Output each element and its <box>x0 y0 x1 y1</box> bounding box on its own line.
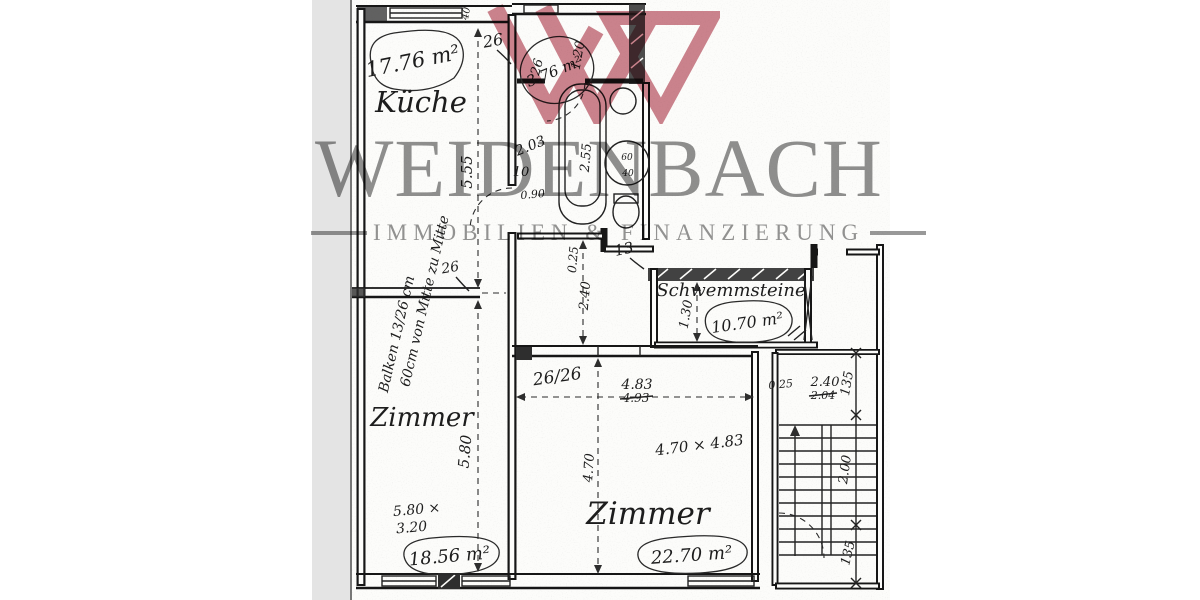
tagline-rule-right <box>870 231 926 235</box>
watermark-tagline: IMMOBILIEN & FINANZIERUNG <box>311 220 889 246</box>
watermark-brand-text: WEIDENBACH <box>315 127 891 210</box>
screenshot-floorplan: 17.76 m² Küche 40 26 5.55 3.76 m² 26 1.2… <box>0 0 1200 600</box>
dim-2-40-flur: 2.40 <box>577 281 595 312</box>
dim-2-40-stair: 2.40 <box>810 375 840 390</box>
size-zimmer-links-2: 3.20 <box>395 519 428 538</box>
room-label-kueche: Küche <box>374 85 467 119</box>
dim-0-25-stair: 0.25 <box>768 377 794 392</box>
scan-gutter-strip <box>312 0 350 600</box>
logo-monogram-icon <box>495 8 712 112</box>
dim-4-70: 4.70 <box>581 453 598 484</box>
watermark-logo <box>480 0 720 124</box>
dim-26-beam: 26 <box>439 259 460 278</box>
room-label-zimmer-links: Zimmer <box>369 403 475 433</box>
dim-0-25-flur: 0.25 <box>565 246 581 274</box>
dim-5-80: 5.80 <box>455 434 476 469</box>
tagline-rule-left <box>311 231 367 235</box>
room-label-zimmer-mitte: Zimmer <box>585 496 712 532</box>
room-label-schwemmsteine: Schwemmsteine <box>656 280 805 301</box>
tagline-text: IMMOBILIEN & FINANZIERUNG <box>367 220 870 246</box>
